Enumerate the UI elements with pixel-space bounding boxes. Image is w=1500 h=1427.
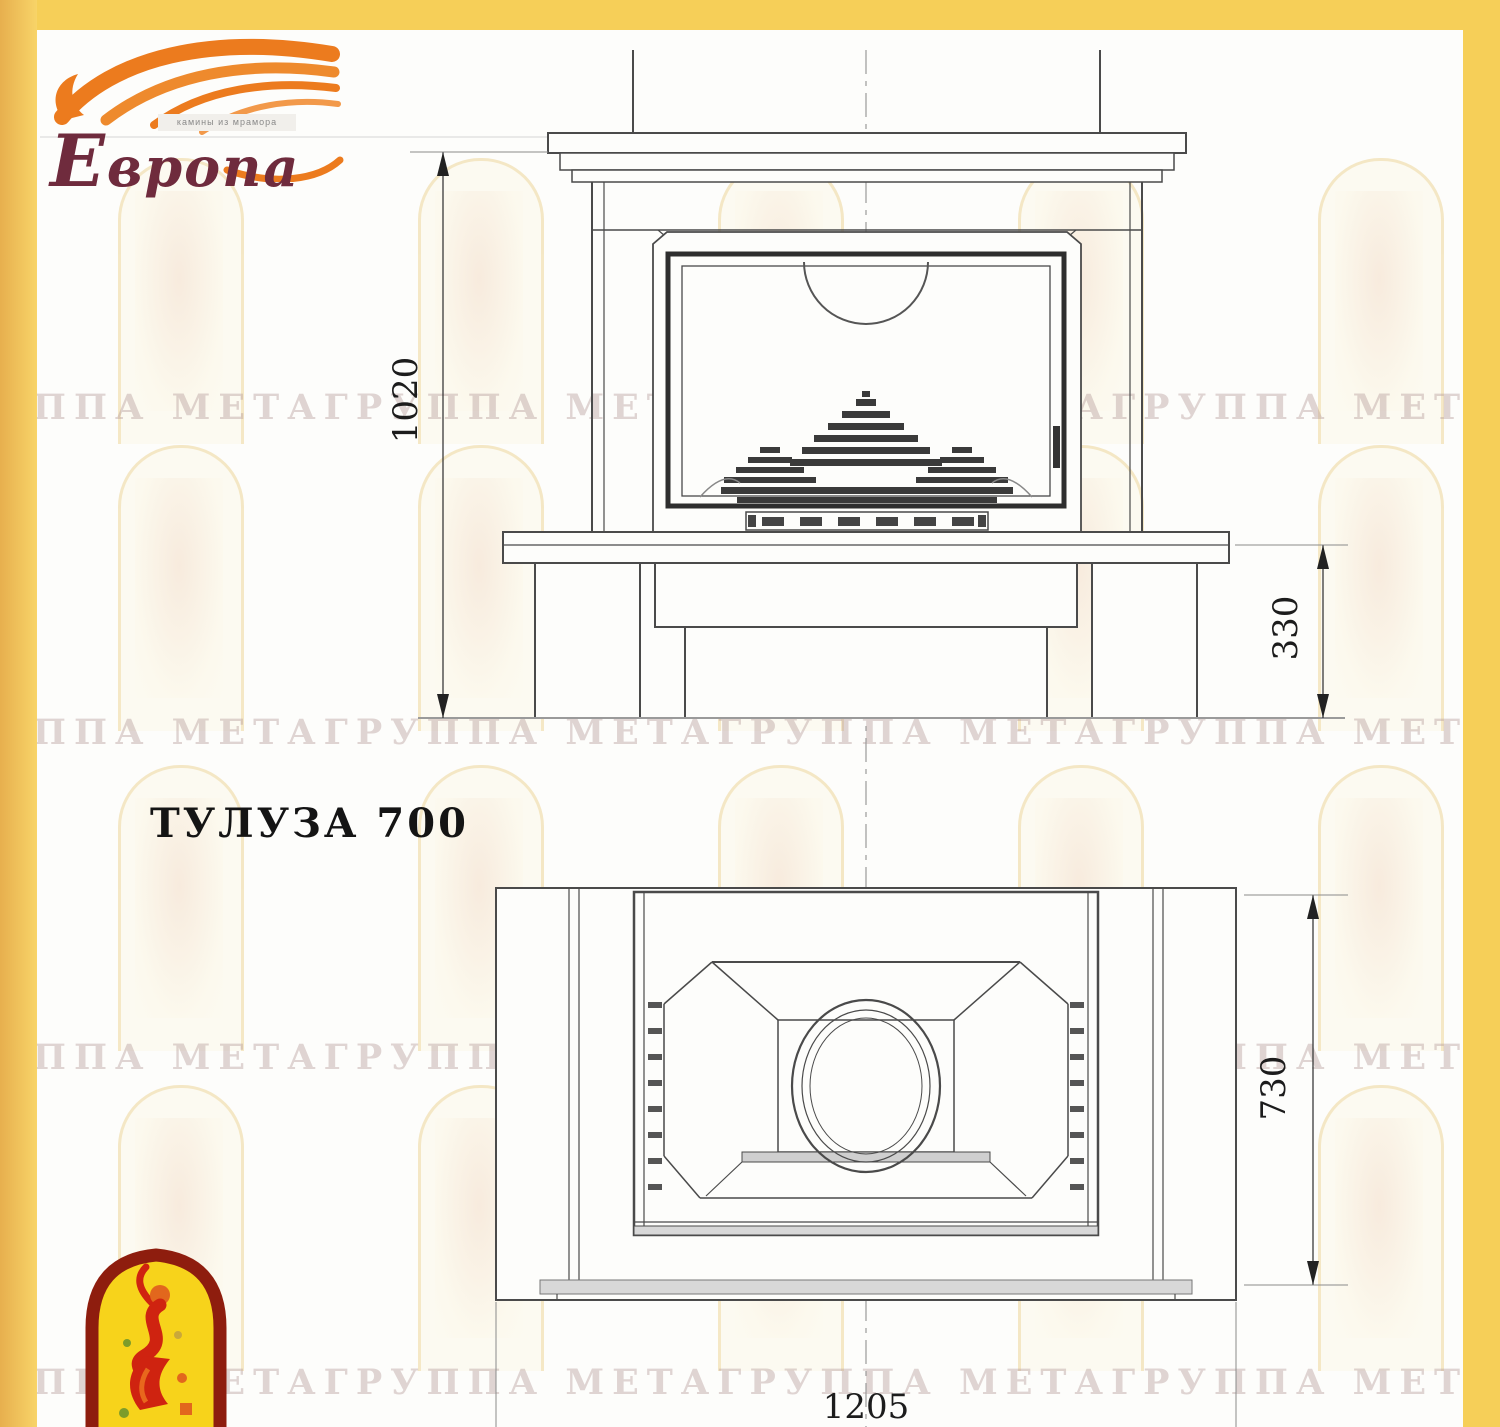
dim-plan-depth: 730 bbox=[1254, 1056, 1294, 1121]
catalog-page: ГРУППА МЕТАГРУППА МЕТАГРУППА МЕТАГРУППА … bbox=[0, 0, 1500, 1427]
brand-tagline: камины из мрамора bbox=[158, 114, 296, 131]
plan-view bbox=[496, 888, 1236, 1300]
brand-rest: вропа bbox=[107, 135, 301, 199]
dim-base-height: 330 bbox=[1266, 596, 1306, 661]
door-handle bbox=[1053, 426, 1060, 468]
dim-front-height: 1020 bbox=[386, 357, 426, 444]
frame-right bbox=[1463, 0, 1500, 1427]
frame-top bbox=[0, 0, 1500, 30]
firebird-figure-icon bbox=[82, 1243, 230, 1427]
technical-drawing: 1020 330 bbox=[0, 0, 1500, 1427]
corner-emblem bbox=[82, 1243, 230, 1427]
frame-left bbox=[0, 0, 37, 1427]
drawing-title: ТУЛУЗА 700 bbox=[150, 800, 469, 847]
brand-initial: Е bbox=[50, 118, 107, 203]
front-view bbox=[418, 50, 1345, 718]
brand-logo: камины из мрамора Европа bbox=[42, 22, 362, 207]
dim-plan-width: 1205 bbox=[823, 1387, 910, 1427]
